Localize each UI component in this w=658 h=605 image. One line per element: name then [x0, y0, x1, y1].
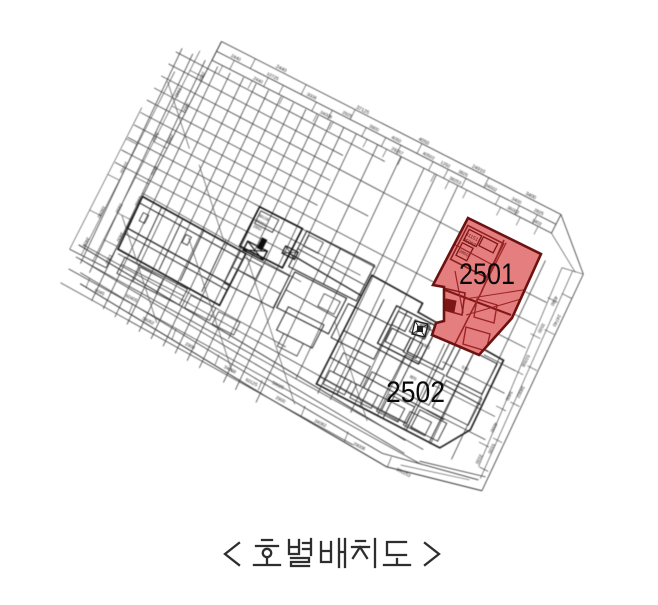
svg-text:2502: 2502: [386, 376, 445, 409]
svg-text:2501: 2501: [459, 258, 515, 291]
